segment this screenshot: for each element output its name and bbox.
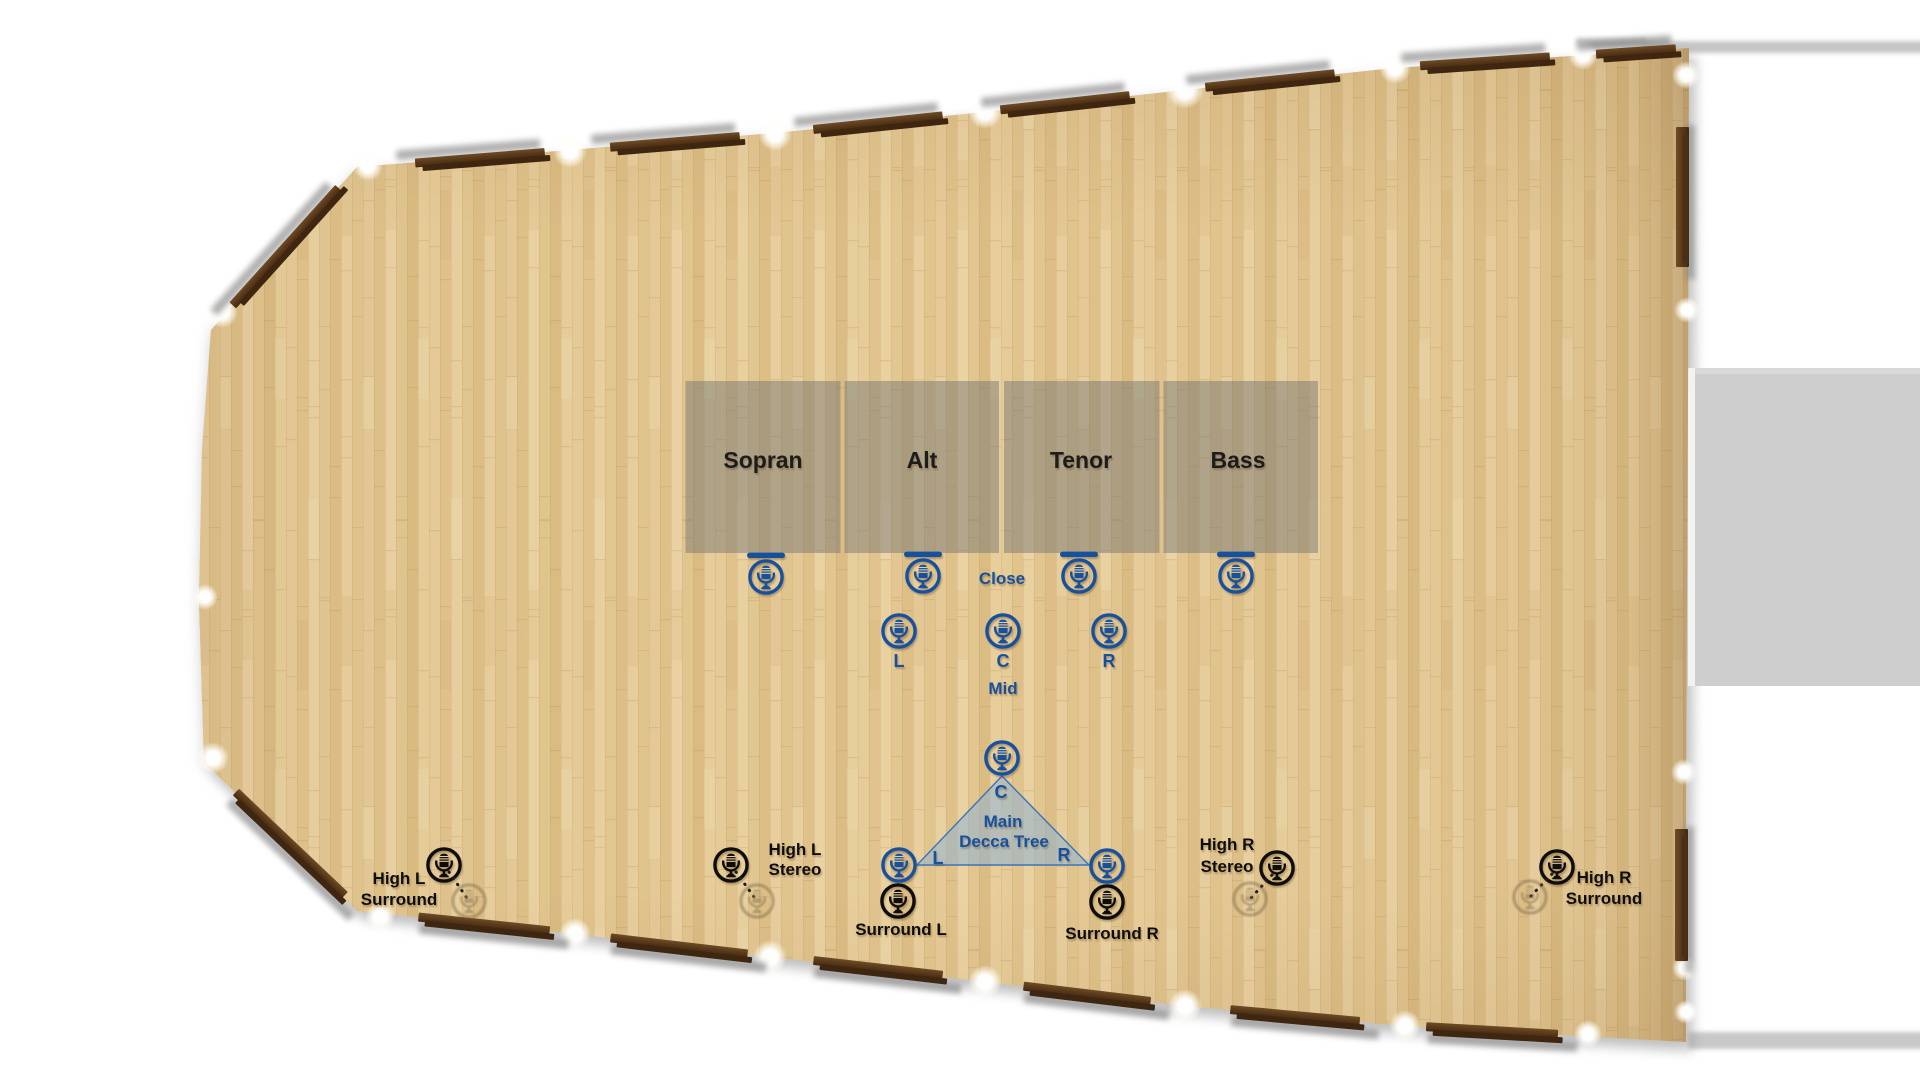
svg-text:L: L — [894, 651, 905, 671]
svg-text:Surround: Surround — [1566, 889, 1643, 908]
svg-text:High R: High R — [1577, 868, 1632, 887]
svg-text:Main: Main — [984, 812, 1023, 831]
svg-text:C: C — [995, 782, 1008, 802]
svg-text:Bass: Bass — [1211, 447, 1266, 473]
svg-text:Stereo: Stereo — [769, 860, 822, 879]
svg-text:L: L — [933, 848, 944, 868]
svg-text:High R: High R — [1200, 835, 1255, 854]
svg-text:High L: High L — [373, 869, 426, 888]
svg-text:Surround: Surround — [361, 890, 438, 909]
svg-text:Mid: Mid — [988, 679, 1017, 698]
svg-text:Decca Tree: Decca Tree — [959, 832, 1049, 851]
svg-text:Surround R: Surround R — [1065, 924, 1159, 943]
svg-text:Sopran: Sopran — [723, 447, 802, 473]
svg-text:Alt: Alt — [907, 447, 938, 473]
svg-text:R: R — [1058, 845, 1071, 865]
svg-text:R: R — [1103, 651, 1116, 671]
svg-text:Close: Close — [979, 569, 1025, 588]
svg-text:Stereo: Stereo — [1201, 857, 1254, 876]
svg-text:C: C — [997, 651, 1010, 671]
svg-text:Tenor: Tenor — [1050, 447, 1112, 473]
svg-text:High L: High L — [769, 840, 822, 859]
svg-text:Surround L: Surround L — [855, 920, 947, 939]
